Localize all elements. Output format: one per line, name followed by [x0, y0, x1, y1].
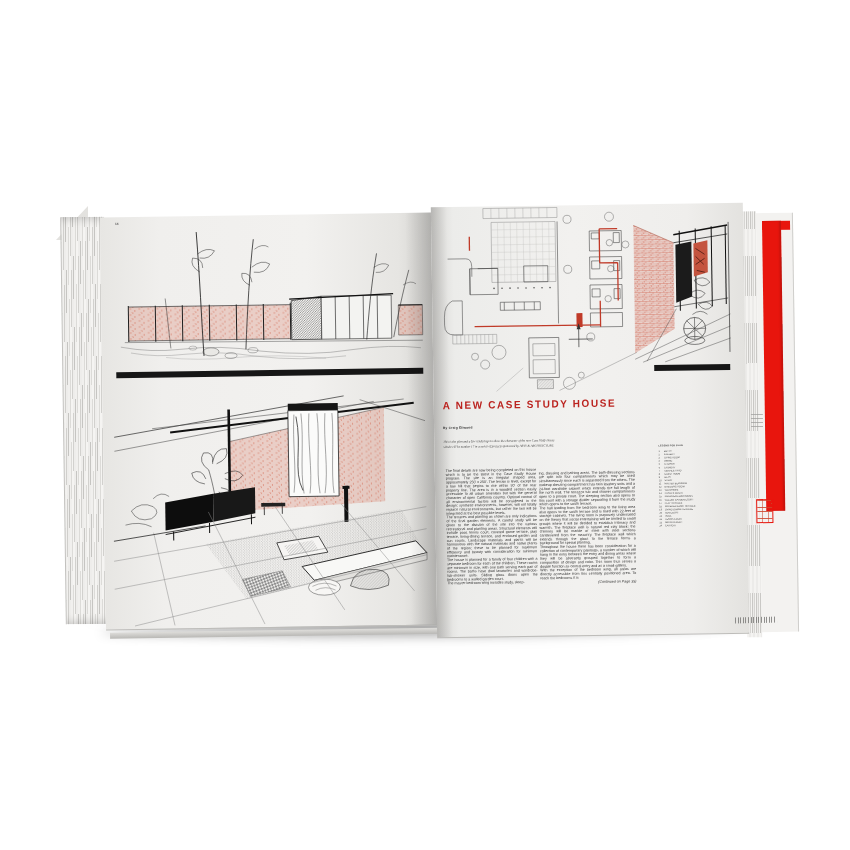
- left-page: 14: [100, 213, 437, 631]
- body-column-2: ing, dressing and bathing areas. The bat…: [539, 466, 638, 629]
- page-stack-right: [741, 211, 799, 638]
- body-column-2-text: ing, dressing and bathing areas. The bat…: [539, 470, 637, 580]
- edge-text-marks: [751, 411, 763, 427]
- legend-item: 24 CARPORT: [660, 523, 728, 527]
- continued-note: (Continued on Page 35): [540, 580, 636, 585]
- brick-court-perspective-drawing: [633, 210, 732, 363]
- plan-legend: LEGEND FOR PLAN 1 ENTRY 2 GALLERY 3 LIVI…: [658, 443, 731, 539]
- exterior-perspective-drawing: [109, 225, 426, 369]
- red-brick-swatch: [756, 499, 773, 523]
- article-byline: By Craig Ellwood: [443, 424, 563, 435]
- bottom-edge-text-marks: [735, 617, 777, 624]
- divider-rule-left: [116, 368, 423, 379]
- floor-plan-drawing: [439, 204, 638, 393]
- legend-header: LEGEND FOR PLAN: [658, 443, 726, 447]
- underlying-red-page: [756, 213, 799, 633]
- interior-perspective-drawing: [112, 389, 430, 628]
- article-title: A NEW CASE STUDY HOUSE: [443, 396, 671, 411]
- body-column-1: The final details are now being complete…: [446, 468, 539, 631]
- right-page: A NEW CASE STUDY HOUSE By Craig Ellwood …: [431, 203, 749, 639]
- cover-red-band: [762, 221, 785, 511]
- divider-rule-right: [654, 364, 730, 371]
- article-intro: This is the plan and a few renderings to…: [443, 437, 563, 467]
